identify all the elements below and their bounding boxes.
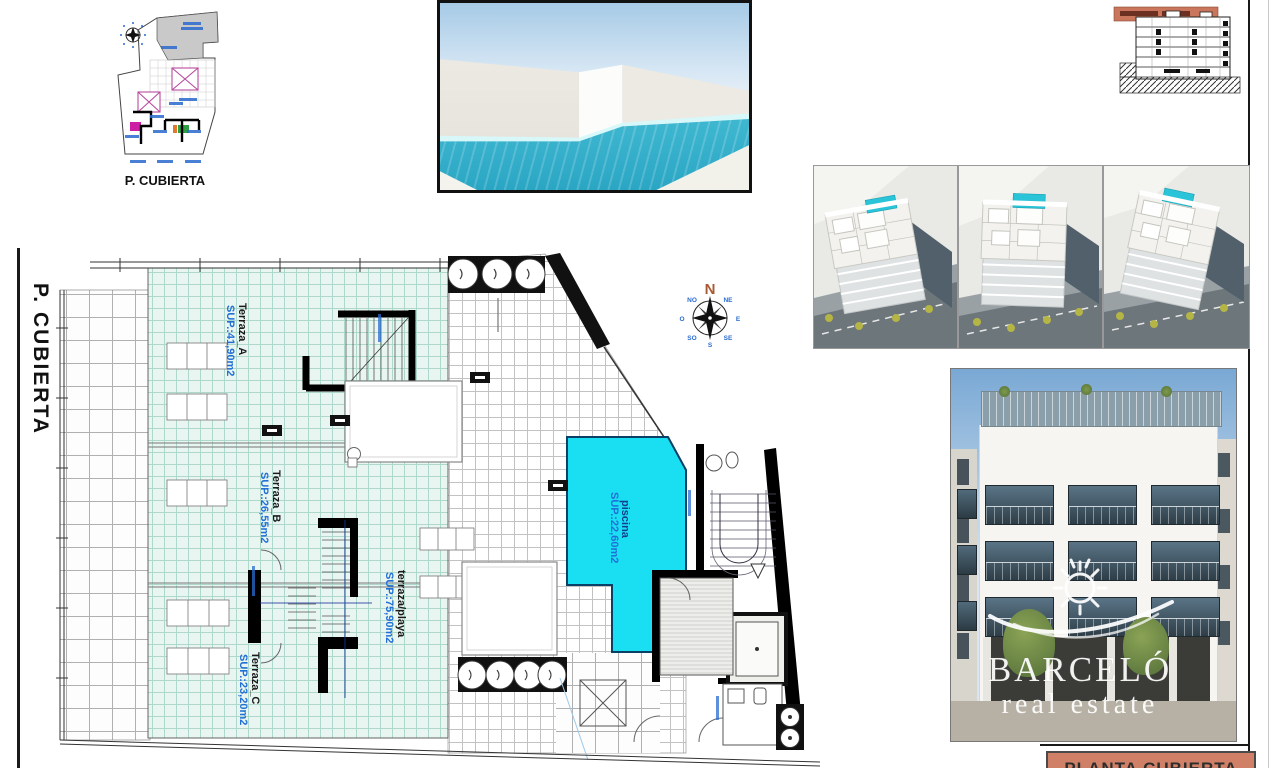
side-window — [957, 545, 977, 575]
building-section-drawing — [1108, 3, 1248, 98]
window — [1068, 541, 1137, 581]
window — [1151, 541, 1220, 581]
roof-plant — [1081, 384, 1092, 395]
compass-dir: SE — [724, 335, 733, 342]
sheet-title-block: PLANTA CUBIERTA — [1046, 751, 1256, 768]
micro-label — [252, 566, 255, 596]
facade-render-photo — [950, 368, 1237, 742]
pool-render-photo — [437, 0, 752, 193]
roof-plant — [999, 386, 1010, 397]
compass-dir: SO — [687, 335, 696, 342]
window-row — [985, 541, 1220, 581]
side-window — [957, 601, 977, 631]
key-plan-caption: P. CUBIERTA — [125, 173, 206, 188]
compass-dir: NO — [687, 297, 697, 304]
solarium-block — [458, 562, 567, 692]
roof-floor-plan: Terraza_A SUP.:41,90m2 Terraza_B SUP.:26… — [20, 248, 820, 768]
micro-label — [378, 314, 381, 342]
section-building — [1136, 11, 1230, 79]
aerial-render-3 — [1103, 165, 1250, 349]
compass-dir: O — [679, 316, 684, 323]
sheet-title: PLANTA CUBIERTA — [1064, 759, 1237, 768]
side-window — [957, 489, 977, 519]
room-area: SUP.:26,55m2 — [258, 472, 270, 543]
tree — [1003, 609, 1055, 677]
window — [985, 541, 1054, 581]
aerial-building — [979, 192, 1067, 307]
micro-label — [497, 298, 499, 332]
compass-dir: S — [708, 342, 713, 349]
drawing-sheet: P. CUBIERTA — [0, 0, 1280, 768]
room-area: SUP.:41,90m2 — [224, 305, 236, 376]
compass-dir: NE — [723, 297, 733, 304]
titleblock-top-line — [1040, 744, 1250, 746]
pavement — [951, 701, 1236, 741]
window — [985, 485, 1054, 525]
window — [1151, 485, 1220, 525]
tree — [1123, 617, 1169, 675]
room-name: terraza/playa — [395, 570, 407, 638]
window — [1068, 485, 1137, 525]
window-row — [985, 485, 1220, 525]
key-plan: P. CUBIERTA — [95, 2, 240, 198]
compass-north-label: N — [705, 281, 716, 298]
room-area: SUP.:75,90m2 — [383, 572, 395, 643]
aerial-render-2 — [958, 165, 1103, 349]
room-name: Terraza_A — [236, 303, 248, 355]
page-edge-line — [1268, 0, 1269, 768]
room-name: Terraza_B — [270, 470, 282, 522]
aerial-render-1 — [813, 165, 958, 349]
compass-dir: E — [736, 316, 741, 323]
room-area: SUP.:22,60m2 — [608, 492, 620, 563]
compass-rose-icon: N NO O SO S SE E NE — [679, 281, 740, 349]
sheet-border-right — [1248, 0, 1250, 768]
roof-plant — [1161, 386, 1172, 397]
room-area: SUP.:23,20m2 — [237, 654, 249, 725]
room-name: Terraza_C — [249, 652, 261, 704]
roof-cabin — [345, 381, 462, 467]
roof-terrace — [981, 391, 1222, 427]
